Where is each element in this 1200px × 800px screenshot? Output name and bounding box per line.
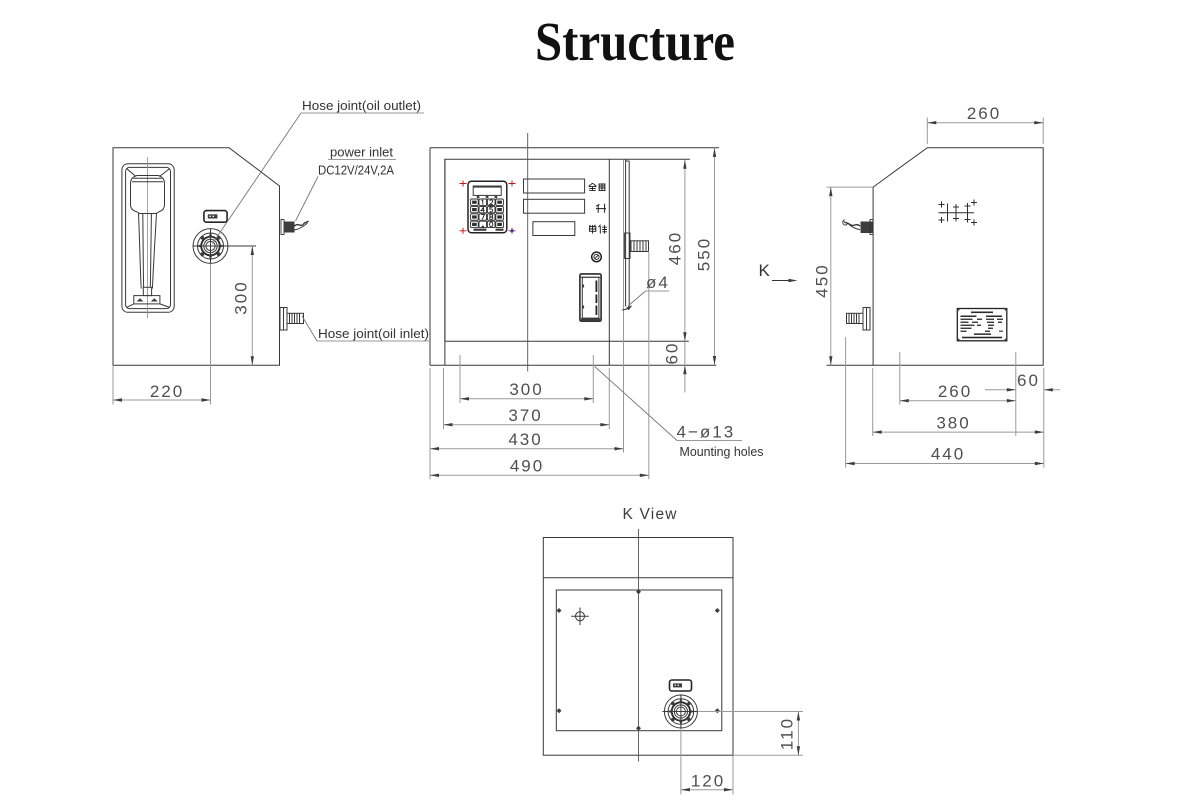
svg-text:60: 60 — [1017, 371, 1040, 390]
svg-text:4−ø13: 4−ø13 — [677, 423, 736, 442]
svg-text:power inlet: power inlet — [330, 146, 394, 160]
svg-text:DC12V/24V,2A: DC12V/24V,2A — [318, 164, 395, 178]
svg-text:370: 370 — [508, 406, 542, 425]
svg-text:Hose joint(oil outlet): Hose joint(oil outlet) — [302, 99, 421, 113]
svg-text:260: 260 — [938, 382, 972, 401]
svg-text:300: 300 — [232, 280, 251, 314]
svg-text:460: 460 — [666, 231, 685, 265]
svg-text:ø4: ø4 — [646, 273, 670, 292]
svg-text:120: 120 — [691, 772, 725, 791]
svg-text:440: 440 — [931, 445, 965, 464]
svg-text:Structure: Structure — [535, 11, 735, 72]
svg-text:300: 300 — [509, 380, 543, 399]
svg-text:430: 430 — [508, 430, 542, 449]
svg-text:K: K — [759, 261, 771, 280]
svg-text:220: 220 — [150, 382, 184, 401]
svg-text:Mounting holes: Mounting holes — [680, 445, 764, 459]
svg-text:K View: K View — [623, 506, 678, 523]
svg-text:380: 380 — [936, 413, 970, 432]
svg-text:Hose joint(oil inlet): Hose joint(oil inlet) — [318, 327, 429, 341]
svg-text:450: 450 — [813, 263, 832, 297]
svg-text:260: 260 — [967, 104, 1001, 123]
svg-text:550: 550 — [695, 237, 714, 271]
svg-text:60: 60 — [663, 342, 682, 365]
svg-text:110: 110 — [778, 717, 797, 750]
svg-text:490: 490 — [510, 457, 544, 476]
